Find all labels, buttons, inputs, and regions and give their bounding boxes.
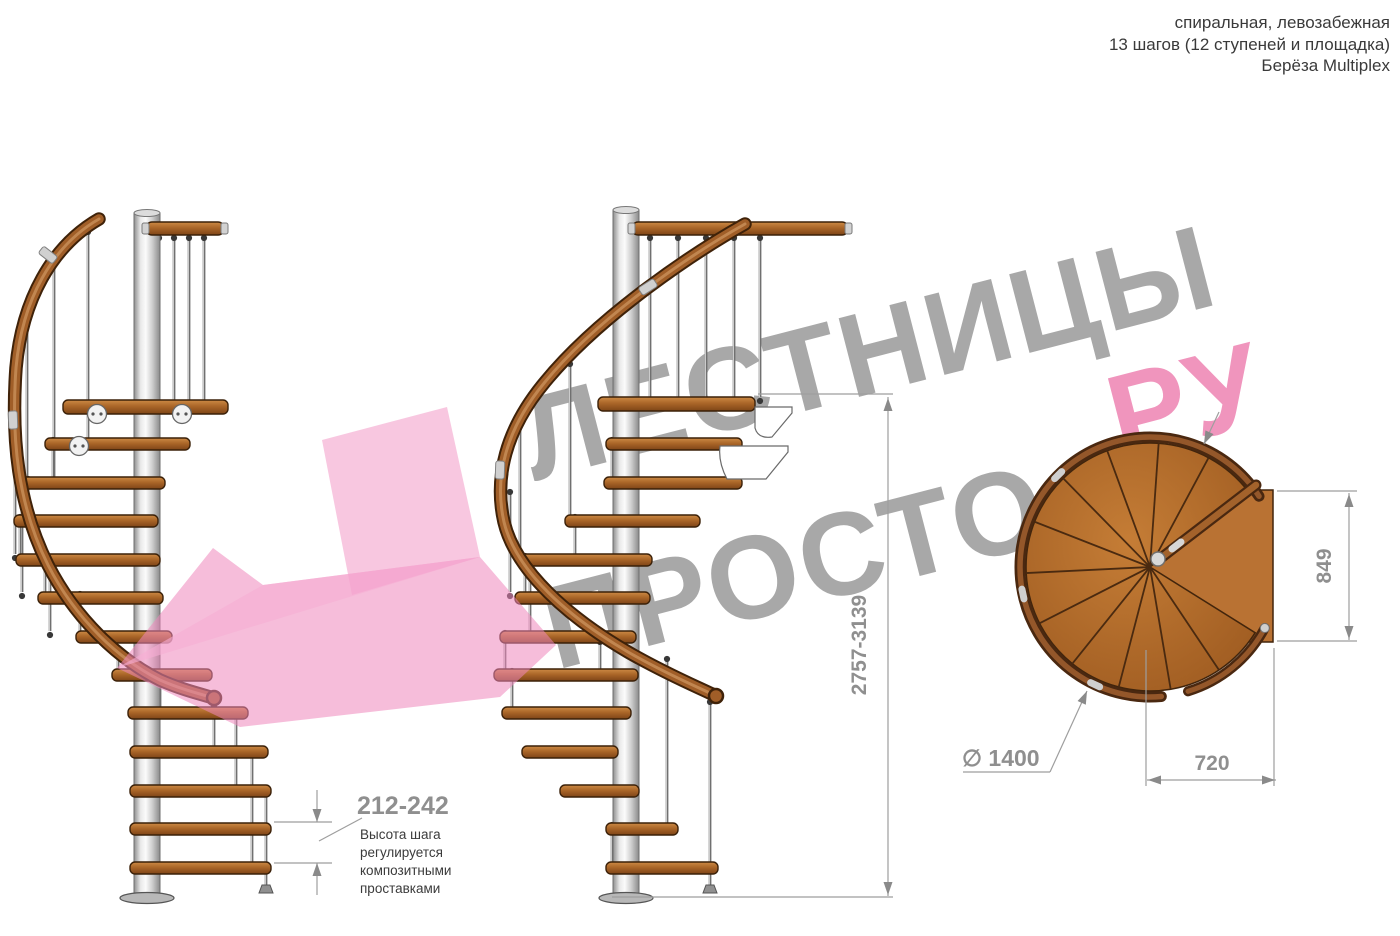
rod-foot (703, 885, 717, 893)
step-tread (516, 554, 652, 566)
dim-total-height-label: 2757-3139 (848, 595, 871, 695)
step-tread (515, 592, 650, 604)
dim-diameter-label: ∅ 1400 (962, 745, 1040, 771)
step-tread (606, 823, 678, 835)
rim-connector-sleeve (1022, 589, 1024, 599)
column-top-cap (134, 210, 160, 217)
rim-connector-sleeve (1055, 472, 1062, 479)
step-tread (502, 707, 631, 719)
rod-collar (19, 593, 25, 599)
spec-type: спиральная, левозабежная (1109, 12, 1390, 34)
step-tread (604, 477, 742, 489)
rail-end-cap (845, 223, 852, 234)
dim-exit-width-label: 720 (1194, 752, 1229, 775)
rod-collar (675, 235, 681, 241)
rod-collar (757, 235, 763, 241)
step-tread (522, 746, 618, 758)
step-height-note-line3: композитными (360, 863, 451, 878)
rod-collar (507, 489, 513, 495)
rod-collar (664, 656, 670, 662)
plate-connector (70, 437, 89, 456)
rod-foot (259, 885, 273, 893)
step-tread (598, 397, 755, 411)
handrail-connector-sleeve (495, 461, 505, 479)
step-tread (20, 477, 165, 489)
spec-material: Берёза Multiplex (1109, 55, 1390, 77)
plate-connector (88, 405, 107, 424)
rail-end-cap (628, 223, 635, 234)
dimension-arrowhead (313, 809, 322, 822)
rod-collar (186, 235, 192, 241)
step-tread (130, 823, 271, 835)
step-tread (130, 785, 271, 797)
column-base-flange (120, 893, 174, 904)
stair-side-view-left (8, 210, 273, 904)
dimension-arrowhead (1262, 776, 1275, 785)
step-tread (560, 785, 639, 797)
rod-collar (201, 235, 207, 241)
dim-step-height-label: 212-242 (357, 792, 449, 820)
rail-end-cap (221, 223, 228, 234)
step-height-note-line1: Высота шага (360, 827, 441, 842)
spec-steps: 13 шагов (12 ступеней и площадка) (1109, 34, 1390, 56)
dimension-arrowhead (1078, 689, 1092, 705)
rod-collar (171, 235, 177, 241)
dimension-arrowhead (1148, 776, 1161, 785)
step-tread (45, 438, 190, 450)
rail-end-cap (142, 223, 149, 234)
step-height-note-line4: проставками (360, 881, 440, 896)
promo-arrow-watermark (117, 407, 556, 727)
step-tread (606, 862, 718, 874)
step-height-note-line2: регулируется (360, 845, 443, 860)
step-tread (130, 862, 271, 874)
dimension-arrowhead (313, 863, 322, 876)
column-top-cap (613, 207, 639, 214)
step-tread (130, 746, 268, 758)
dimension-line (1050, 691, 1087, 772)
column-base-flange (599, 893, 653, 904)
step-tread (38, 592, 163, 604)
step-tread (565, 515, 700, 527)
plan-center-hub (1151, 552, 1165, 566)
dimension-arrowhead (884, 882, 893, 895)
dimension-arrowhead (1345, 626, 1354, 639)
rod-collar (757, 398, 763, 404)
rim-connector-sleeve (1091, 683, 1100, 687)
landing-guard-rail (146, 222, 224, 235)
dim-landing-depth-label: 849 (1313, 548, 1336, 583)
landing-support-bracket (720, 446, 788, 479)
drawing-sheet: ЛЕСТНИЦЫ ПРОСТО .РУ 2757-3139 849 720 ∅ … (0, 0, 1400, 936)
plate-connector (173, 405, 192, 424)
spec-header: спиральная, левозабежная 13 шагов (12 ст… (1109, 12, 1390, 77)
stairs-technical-drawing: ЛЕСТНИЦЫ ПРОСТО .РУ 2757-3139 849 720 ∅ … (0, 0, 1400, 936)
dimension-arrowhead (1345, 494, 1354, 507)
rod-collar (47, 632, 53, 638)
handrail-connector-sleeve (8, 411, 18, 429)
rod-collar (647, 235, 653, 241)
handrail-end-cap (709, 689, 723, 703)
